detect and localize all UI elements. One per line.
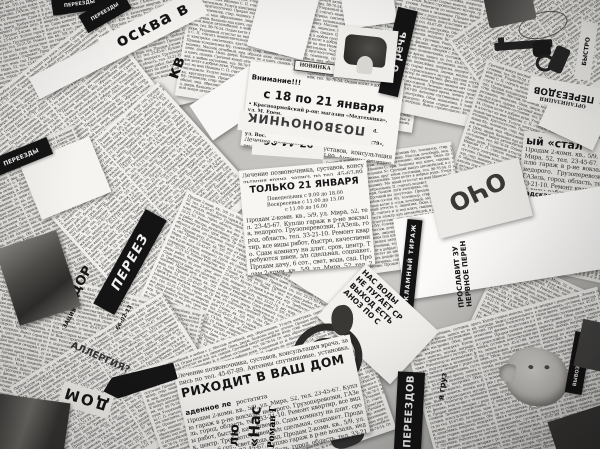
light-figure-shape <box>356 55 374 75</box>
attention-label: Внимание!!! <box>251 73 301 87</box>
pereezdov-text: ПЕРЕЕЗДОВ <box>402 374 417 447</box>
gruz-text: я груз <box>436 372 448 401</box>
pereezdov-banner: ПЕРЕЕЗДОВ <box>394 371 425 449</box>
bystro-text: БЫСТРО <box>581 36 592 65</box>
revolver-sight <box>498 37 504 43</box>
newspaper-collage-photo: Продам 2-комн. кв., 5/9, ул. Мира, 52, т… <box>0 0 600 449</box>
vertical-titles-group: лю «Нас Роман Г <box>227 390 310 449</box>
lyu-text: лю <box>227 390 245 447</box>
typewriter-photo <box>333 25 398 83</box>
scrap-tolko-ad: Лечение позвоночника, суставов, консульт… <box>239 160 376 276</box>
photo-fragment-bottom-left <box>0 393 70 449</box>
face-sketch-photo <box>501 344 572 410</box>
nas-quote-text: «Нас <box>245 391 266 448</box>
kv-text: кв <box>163 54 189 82</box>
roman-text: Роман Г <box>267 392 280 448</box>
headline-ocho: ОЧО <box>444 166 510 218</box>
scrap-body-text: Продам 2-комн. кв., 5/9, ул. Мира, 52, т… <box>246 208 375 276</box>
novinka-label: НОВИНКА <box>299 62 331 72</box>
